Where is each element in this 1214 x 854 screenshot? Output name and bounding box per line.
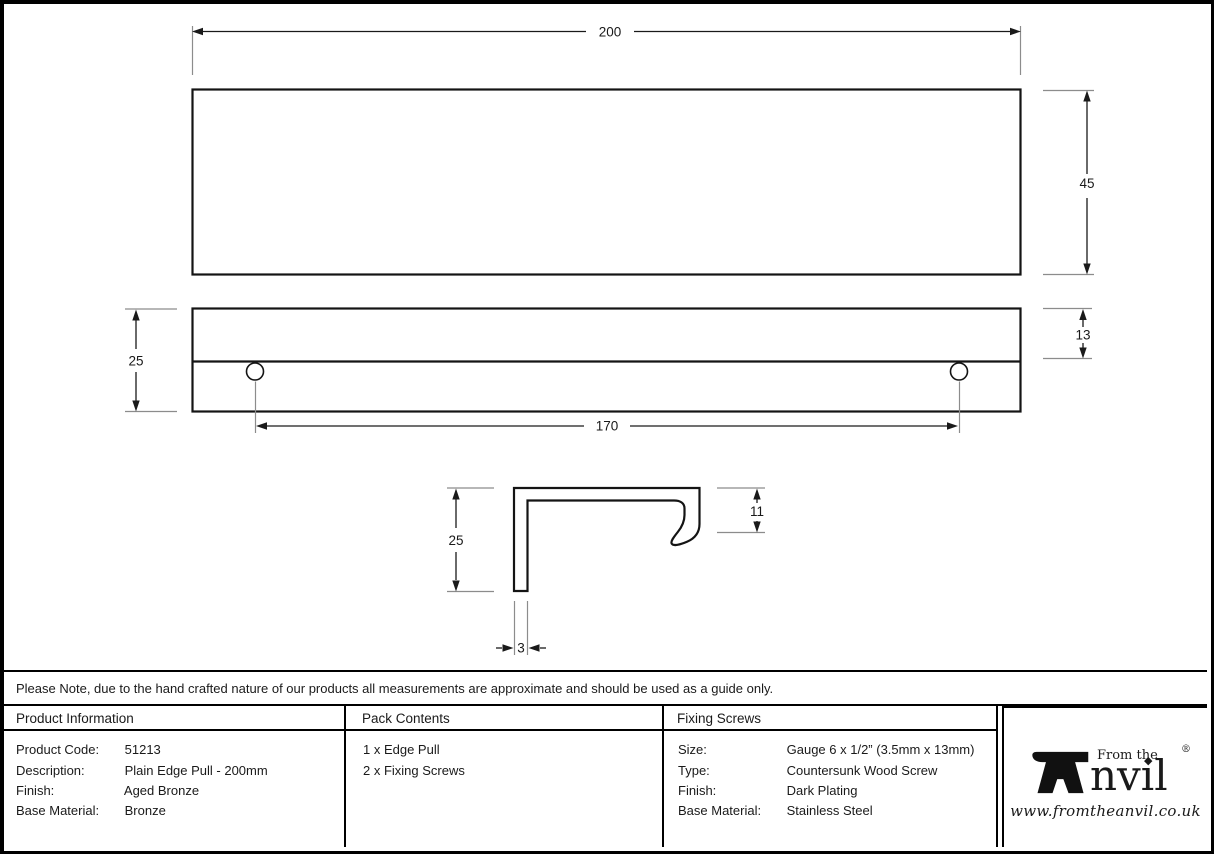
table-row: Type: Countersunk Wood Screw — [678, 763, 937, 779]
arrowhead — [1079, 309, 1086, 320]
arrowhead — [529, 644, 540, 651]
top-view — [193, 90, 1021, 275]
arrowhead — [1010, 28, 1021, 35]
screw-hole-right — [951, 363, 968, 380]
row-value: Bronze — [125, 803, 166, 818]
row-label: Type: — [678, 763, 783, 779]
anvil-icon — [1030, 749, 1092, 796]
table-column-divider — [344, 706, 346, 847]
dimension-face-height: 45 — [1043, 91, 1095, 275]
row-value: Countersunk Wood Screw — [787, 763, 938, 778]
dimension-profile-height: 25 — [447, 488, 494, 592]
anvil-logo: From the nvıl ◆ ® www.fromtheanvil.co.uk — [1002, 706, 1207, 847]
row-label: Finish: — [16, 783, 121, 799]
dim-label-material-thickness: 3 — [517, 641, 525, 656]
arrowhead — [452, 581, 459, 592]
arrowhead — [452, 489, 459, 500]
arrowhead — [132, 401, 139, 412]
table-row: Finish: Dark Plating — [678, 783, 857, 799]
profile-view — [514, 488, 700, 591]
row-label: Size: — [678, 742, 783, 758]
row-value: Dark Plating — [787, 783, 858, 798]
table-header-divider — [4, 729, 998, 731]
screw-hole-left — [247, 363, 264, 380]
dimension-hook-depth: 11 — [717, 488, 765, 533]
dim-label-hole-spacing: 170 — [596, 419, 619, 434]
row-value: Aged Bronze — [124, 783, 199, 798]
row-label: Description: — [16, 763, 121, 779]
arrowhead — [753, 522, 760, 533]
row-value: 51213 — [125, 742, 161, 757]
top-view-outline — [193, 90, 1021, 275]
arrowhead — [503, 644, 514, 651]
list-item: 2 x Fixing Screws — [363, 763, 465, 779]
note-bar: Please Note, due to the hand crafted nat… — [4, 670, 1207, 706]
dimension-edge-height: 25 — [125, 309, 177, 412]
front-view-outline — [193, 309, 1021, 412]
table-row: Finish: Aged Bronze — [16, 783, 199, 799]
logo-url: www.fromtheanvil.co.uk — [1004, 802, 1207, 820]
arrowhead — [1083, 91, 1090, 102]
table-row: Base Material: Stainless Steel — [678, 803, 873, 819]
arrowhead — [256, 422, 267, 429]
table-column-divider — [662, 706, 664, 847]
row-value: Gauge 6 x 1/2” (3.5mm x 13mm) — [787, 742, 975, 757]
row-label: Base Material: — [678, 803, 783, 819]
dim-label-edge-height: 25 — [128, 354, 143, 369]
fixing-screws-header: Fixing Screws — [677, 711, 761, 726]
arrowhead — [192, 28, 203, 35]
dimension-material-thickness: 3 — [496, 601, 546, 656]
note-text: Please Note, due to the hand crafted nat… — [16, 681, 773, 696]
logo-wordmark: nvıl — [1090, 753, 1168, 799]
arrowhead — [947, 422, 958, 429]
registered-mark: ® — [1181, 744, 1191, 755]
arrowhead — [132, 310, 139, 321]
table-row: Description: Plain Edge Pull - 200mm — [16, 763, 268, 779]
list-item: 1 x Edge Pull — [363, 742, 440, 758]
table-row: Base Material: Bronze — [16, 803, 166, 819]
dim-label-hook-depth: 11 — [750, 504, 764, 519]
dim-label-overall-width: 200 — [599, 25, 622, 40]
arrowhead — [753, 489, 760, 500]
dimension-overall-width: 200 — [192, 25, 1021, 76]
table-column-divider — [996, 706, 998, 847]
row-value: Stainless Steel — [787, 803, 873, 818]
spec-sheet: 200 45 25 — [0, 0, 1214, 854]
dim-label-lip-height: 13 — [1075, 328, 1090, 343]
profile-outline — [514, 488, 700, 591]
dim-label-face-height: 45 — [1079, 176, 1094, 191]
dimension-lip-height: 13 — [1043, 309, 1092, 359]
row-label: Base Material: — [16, 803, 121, 819]
table-row: Product Code: 51213 — [16, 742, 161, 758]
diamond-icon: ◆ — [1144, 754, 1152, 767]
row-label: Product Code: — [16, 742, 121, 758]
dim-label-profile-height: 25 — [448, 533, 463, 548]
pack-contents-header: Pack Contents — [362, 711, 450, 726]
row-label: Finish: — [678, 783, 783, 799]
row-value: Plain Edge Pull - 200mm — [125, 763, 268, 778]
technical-drawing: 200 45 25 — [0, 0, 1214, 671]
table-row: Size: Gauge 6 x 1/2” (3.5mm x 13mm) — [678, 742, 974, 758]
arrowhead — [1079, 348, 1086, 359]
product-information-header: Product Information — [16, 711, 134, 726]
arrowhead — [1083, 264, 1090, 275]
front-view — [193, 309, 1021, 412]
